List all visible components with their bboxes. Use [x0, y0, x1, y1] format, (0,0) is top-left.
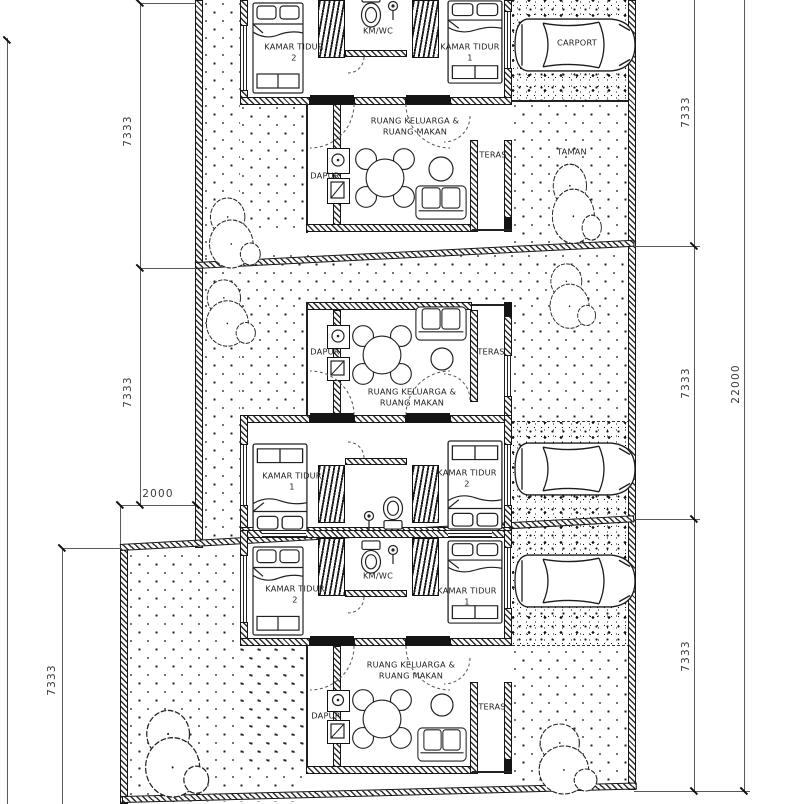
tree-icon — [534, 722, 600, 798]
room-label-bathroom: KM/WC — [363, 571, 393, 582]
side-table-icon — [430, 347, 454, 371]
site-boundary-wall-left — [195, 0, 203, 548]
dimension-label: 7333 — [680, 96, 692, 128]
extension-line — [7, 38, 8, 804]
room-label-bedroom-2: KAMAR TIDUR 2 — [437, 467, 496, 488]
garden-wall-line — [306, 104, 308, 233]
site-boundary-wall-left-lower — [120, 548, 128, 804]
wall-segment — [354, 415, 406, 423]
dimension-label: 22000 — [730, 364, 742, 403]
dimension-label: 2000 — [142, 488, 174, 500]
wall-segment — [345, 590, 407, 597]
wall-segment — [504, 682, 512, 760]
wall-segment — [450, 638, 512, 646]
tree-icon — [546, 262, 598, 332]
driveway-edge-line — [512, 421, 630, 422]
dimension-label: 7333 — [122, 376, 134, 408]
site-plan-canvas: 7333 7333 2000 7333 7333 7333 7333 22000 — [0, 0, 804, 804]
tree-icon — [205, 196, 263, 272]
wall-segment — [240, 97, 310, 105]
driveway-edge-line — [512, 645, 630, 646]
garden-wall-line — [306, 302, 308, 420]
window — [240, 445, 247, 505]
extension-line — [120, 505, 121, 544]
kitchen-stove-icon — [327, 178, 350, 204]
tree-icon — [140, 708, 212, 802]
terrace-edge-line — [472, 229, 512, 231]
extension-line — [634, 246, 700, 247]
window — [504, 356, 511, 396]
kitchen-stove-icon — [327, 720, 350, 744]
terrace-edge-line — [472, 771, 512, 773]
window — [448, 530, 492, 537]
hatched-wall-block — [318, 465, 345, 523]
wall-segment — [504, 0, 512, 12]
dimension-line-2000 — [120, 505, 196, 506]
room-label-living-dining: RUANG KELUARGA & RUANG MAKAN — [367, 659, 455, 680]
room-label-terrace: TERAS — [478, 702, 505, 713]
car-top-view-icon — [513, 441, 637, 497]
wall-segment — [345, 50, 407, 57]
car-top-view-icon — [513, 553, 637, 609]
site-boundary-wall-right — [628, 0, 636, 790]
bed-icon — [447, 540, 503, 624]
shower-icon — [386, 544, 400, 566]
kitchen-sink-icon — [327, 325, 350, 349]
window — [240, 26, 247, 90]
window — [240, 556, 247, 622]
hatched-wall-block — [412, 0, 439, 58]
room-label-bedroom-1: KAMAR TIDUR 1 — [437, 585, 496, 606]
wall-segment — [470, 140, 478, 232]
dining-set-icon — [350, 143, 420, 213]
window — [504, 548, 511, 608]
wall-segment — [345, 458, 407, 465]
room-label-bedroom-1: KAMAR TIDUR 1 — [262, 470, 321, 491]
room-label-bedroom-1: KAMAR TIDUR 1 — [440, 41, 499, 62]
room-label-terrace: TERAS — [479, 150, 506, 161]
wall-segment — [504, 530, 512, 548]
room-label-carport: CARPORT — [557, 38, 597, 49]
door-swing-arc — [348, 597, 364, 613]
extension-line — [140, 3, 196, 4]
door-swing-arc — [348, 442, 364, 458]
wall-segment — [354, 638, 406, 646]
room-label-living-dining: RUANG KELUARGA & RUANG MAKAN — [368, 386, 456, 407]
dimension-line-left — [140, 3, 141, 505]
room-label-bathroom: KM/WC — [363, 26, 393, 37]
toilet-icon — [358, 540, 384, 574]
carport-edge-line — [512, 100, 630, 102]
dimension-line-right-inner — [694, 0, 695, 792]
wall-segment — [450, 415, 512, 423]
window — [504, 445, 511, 505]
tree-icon — [202, 278, 258, 350]
door-leaf — [406, 636, 450, 646]
side-table-icon — [428, 156, 454, 182]
window — [262, 530, 306, 537]
hatched-wall-block — [412, 465, 439, 523]
door-swing-arc — [348, 57, 364, 73]
dimension-label: 7333 — [680, 367, 692, 399]
shower-icon — [362, 510, 376, 532]
wall-segment — [306, 224, 472, 232]
dimension-label: 7333 — [46, 664, 58, 696]
room-label-terrace: TERAS — [477, 347, 504, 358]
wall-segment — [504, 316, 512, 356]
room-label-living-dining: RUANG KELUARGA & RUANG MAKAN — [371, 115, 459, 136]
window — [504, 12, 511, 68]
room-label-bedroom-2: KAMAR TIDUR 2 — [265, 583, 324, 604]
wall-segment — [306, 766, 472, 774]
dining-set-icon — [347, 684, 417, 754]
door-swing-arc — [310, 104, 354, 148]
toilet-icon — [358, 0, 384, 28]
wall-segment — [354, 97, 406, 105]
kitchen-sink-icon — [327, 690, 350, 712]
room-label-kitchen: DAPUR — [311, 711, 340, 722]
door-swing-arc — [310, 646, 354, 690]
dimension-label: 7333 — [122, 115, 134, 147]
dimension-label: 7333 — [680, 640, 692, 672]
sofa-icon — [415, 306, 467, 341]
tree-icon — [548, 162, 604, 248]
sofa-icon — [415, 185, 467, 220]
wall-segment — [240, 0, 248, 26]
garden-wall-line — [306, 646, 308, 766]
extension-line — [634, 519, 700, 520]
door-leaf — [310, 636, 354, 646]
dimension-line-left-lower — [62, 548, 63, 804]
wall-segment — [240, 530, 248, 556]
room-label-kitchen: DAPUR — [310, 347, 339, 358]
garden-texture — [240, 646, 308, 765]
dimension-line-right-outer — [744, 0, 745, 792]
toilet-icon — [380, 496, 406, 530]
corner-block — [504, 302, 512, 316]
room-label-kitchen: DAPUR — [310, 171, 339, 182]
extension-line — [140, 268, 196, 269]
wall-segment — [240, 638, 310, 646]
extension-line — [62, 548, 122, 549]
side-table-icon — [430, 693, 454, 717]
room-label-garden: TAMAN — [557, 147, 587, 158]
room-label-bedroom-2: KAMAR TIDUR 2 — [264, 41, 323, 62]
extension-line — [634, 791, 750, 792]
door-swing-arc — [310, 371, 354, 415]
wall-segment — [450, 97, 512, 105]
wall-segment — [470, 682, 478, 774]
hatched-wall-block — [412, 538, 439, 596]
wall-segment — [504, 415, 512, 445]
wall-segment — [240, 415, 248, 445]
wall-segment — [240, 415, 310, 423]
sofa-icon — [417, 727, 467, 762]
shower-icon — [386, 0, 400, 22]
